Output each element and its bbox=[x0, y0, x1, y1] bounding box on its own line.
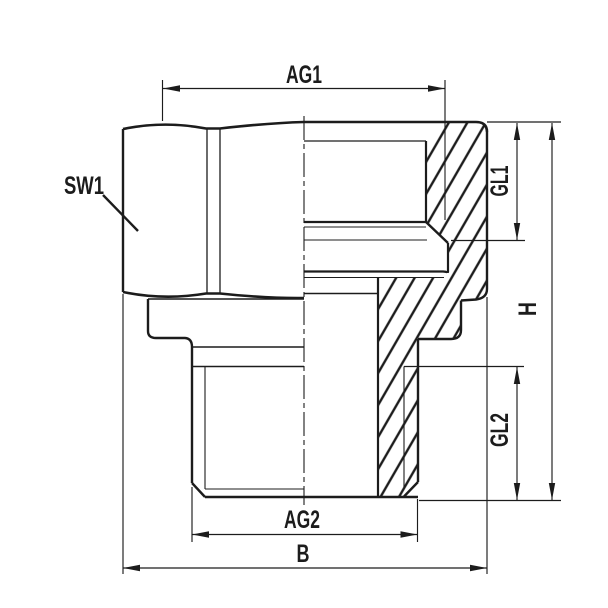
label-b: B bbox=[297, 540, 310, 568]
gl1-arrow-top bbox=[514, 123, 520, 140]
hex-top-edge bbox=[123, 122, 304, 129]
ag2-arrow-right bbox=[401, 531, 418, 537]
label-sw1: SW1 bbox=[64, 172, 104, 200]
h-arrow-top bbox=[549, 123, 555, 140]
h-arrow-bottom bbox=[549, 483, 555, 500]
label-gl2: GL2 bbox=[486, 413, 514, 447]
ag2-arrow-left bbox=[192, 531, 209, 537]
part-outline-view-half bbox=[123, 122, 304, 497]
thread-chamfer-left bbox=[192, 483, 205, 497]
hex-bottom-edge bbox=[123, 292, 304, 298]
hatch-region bbox=[378, 122, 487, 497]
label-ag1: AG1 bbox=[286, 61, 322, 89]
label-ag2: AG2 bbox=[284, 506, 320, 534]
label-h: H bbox=[514, 302, 542, 316]
b-arrow-left bbox=[123, 565, 140, 571]
technical-drawing-canvas: AG1 SW1 GL1 H GL2 AG2 B bbox=[0, 0, 608, 608]
b-arrow-right bbox=[470, 565, 487, 571]
section-hatching bbox=[378, 122, 487, 497]
adapter-section-drawing: AG1 SW1 GL1 H GL2 AG2 B bbox=[0, 0, 608, 608]
dimension-lines bbox=[103, 80, 561, 574]
collar-left-edge bbox=[148, 299, 156, 338]
dimension-arrowheads bbox=[123, 85, 555, 571]
ag1-arrow-right bbox=[428, 85, 445, 91]
gl2-arrow-bottom bbox=[514, 483, 520, 500]
collar-shoulder bbox=[156, 338, 192, 347]
sw1-leader-line bbox=[103, 195, 138, 231]
gl2-arrow-top bbox=[514, 367, 520, 384]
gl1-arrow-bottom bbox=[514, 223, 520, 240]
groove-bottom-line bbox=[304, 272, 448, 274]
ag1-arrow-left bbox=[163, 85, 180, 91]
label-gl1: GL1 bbox=[486, 165, 514, 196]
